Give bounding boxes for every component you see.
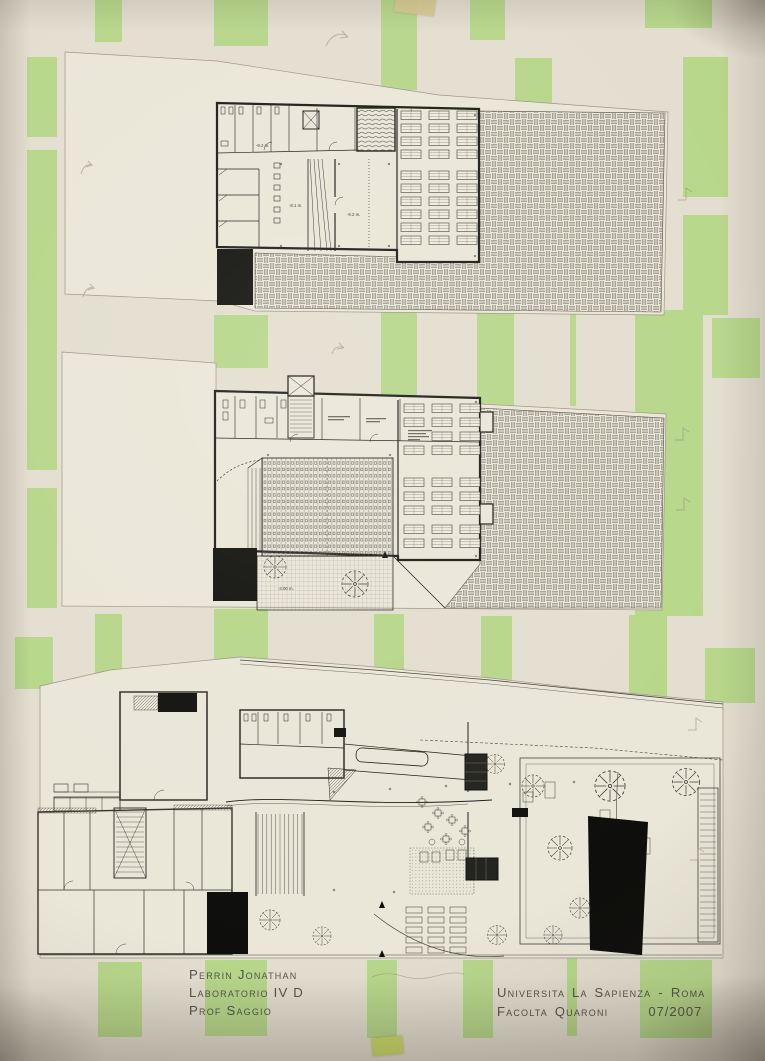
course-name: Laboratorio IV D (189, 984, 304, 1002)
date-label: 07/2007 (648, 1004, 702, 1019)
arrow-doodle (690, 848, 704, 860)
faculty-name: Facolta Quaroni (497, 1004, 608, 1019)
architecture-poster-photo: -9.2 m. -8.1 m. -9.2 m. (0, 0, 765, 1061)
arrow-doodle (326, 31, 348, 46)
pencil-doodles (0, 0, 765, 1061)
professor-name: Prof Saggio (189, 1002, 304, 1020)
arrow-doodle (688, 718, 702, 730)
arrow-doodle (81, 161, 92, 174)
faculty-line: Facolta Quaroni07/2007 (497, 1002, 706, 1021)
credits-right-block: Universita La Sapienza-Roma Facolta Quar… (497, 983, 706, 1021)
separator-dash: - (658, 985, 664, 1000)
credits-left-block: Perrin Jonathan Laboratorio IV D Prof Sa… (189, 966, 304, 1020)
arrow-doodle (678, 188, 692, 200)
city-name: Roma (671, 985, 706, 1000)
institution-name: Universita La Sapienza (497, 985, 651, 1000)
author-name: Perrin Jonathan (189, 966, 304, 984)
tape-piece-bottom (371, 1036, 403, 1057)
institution-line: Universita La Sapienza-Roma (497, 983, 706, 1002)
arrow-doodle (332, 343, 344, 354)
arrow-doodle (675, 428, 689, 440)
arrow-doodle (676, 498, 690, 510)
arrow-doodle (83, 284, 94, 297)
pencil-squiggle (372, 973, 464, 979)
